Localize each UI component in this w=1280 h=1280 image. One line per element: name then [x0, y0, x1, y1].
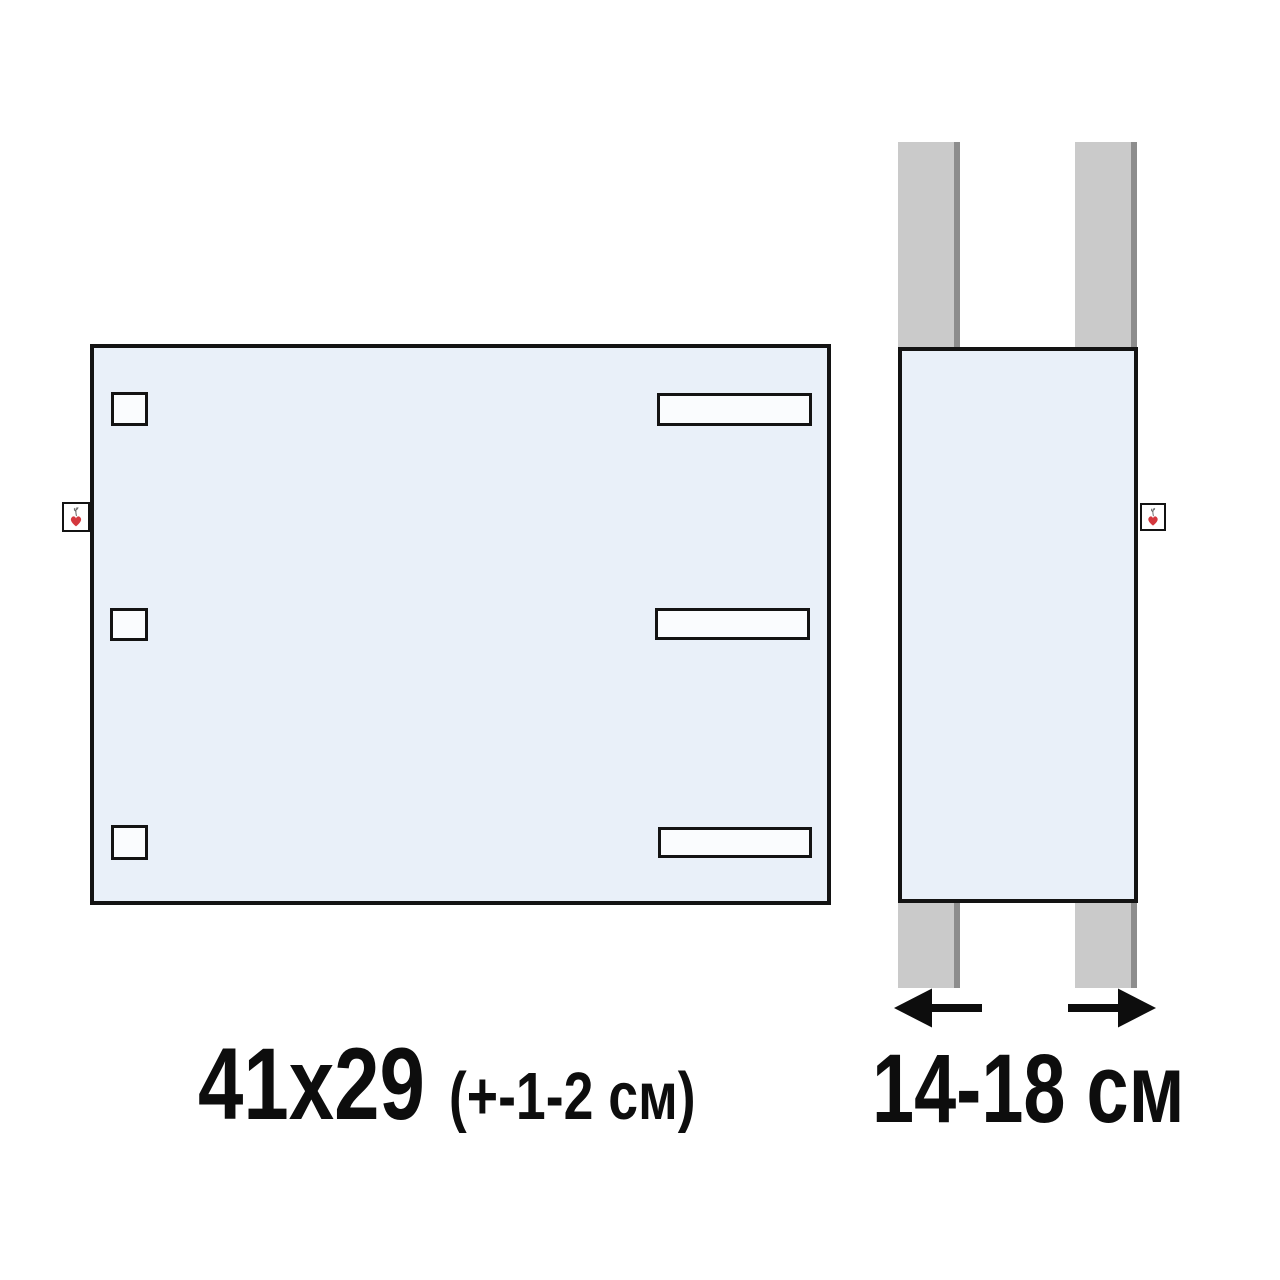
strap-bottom-right [1075, 899, 1137, 988]
front-tolerance-text: (+-1-2 см) [449, 1063, 696, 1130]
product-dimensions-diagram: 41x29 (+-1-2 см) 14-18 см [0, 0, 1280, 1280]
strap-width-label: 14-18 см [872, 1040, 1185, 1137]
heart-sprout-icon [1142, 505, 1164, 529]
strap-top-right [1075, 142, 1137, 352]
cutout-square-middle [110, 608, 148, 641]
front-panel [90, 344, 831, 905]
strap-slot-top [657, 393, 812, 426]
front-size-text: 41x29 [198, 1033, 425, 1135]
strap-slot-bottom [658, 827, 812, 858]
brand-tag-side [1140, 503, 1166, 531]
arrow-right-icon [1068, 989, 1156, 1028]
brand-tag [62, 502, 90, 532]
strap-bottom-left [898, 899, 960, 988]
strap-top-left [898, 142, 960, 352]
arrow-left-icon [894, 989, 982, 1028]
front-dimension-label: 41x29 (+-1-2 см) [198, 1033, 696, 1135]
side-panel [898, 347, 1138, 903]
cutout-square-top [111, 392, 148, 426]
heart-sprout-icon [64, 504, 88, 530]
cutout-square-bottom [111, 825, 148, 860]
width-measure-arrows [880, 985, 1170, 1031]
strap-slot-middle [655, 608, 810, 640]
